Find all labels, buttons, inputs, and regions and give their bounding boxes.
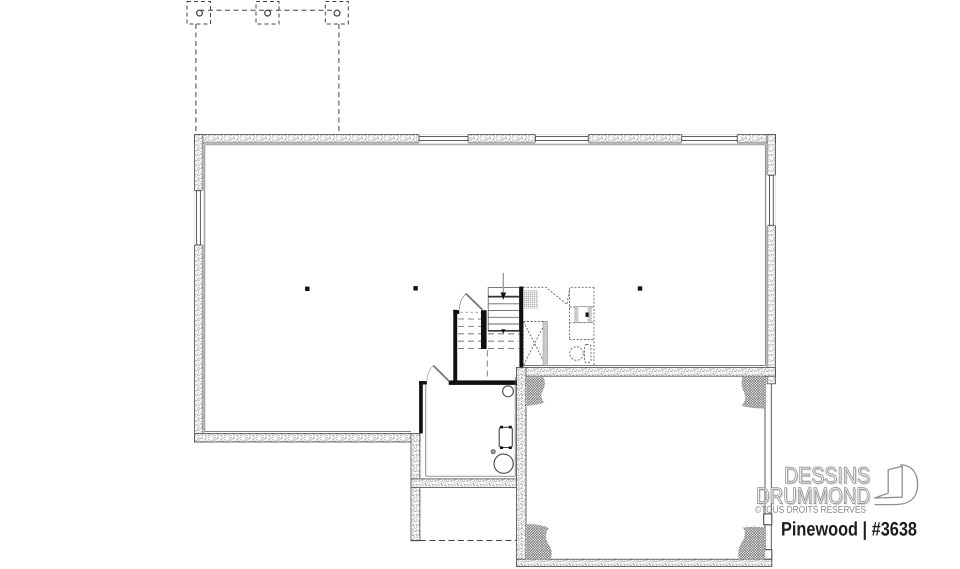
svg-text:Pinewood | #3638: Pinewood | #3638 [781, 518, 917, 540]
svg-text:©TOUS DROITS RÉSERVÉS: ©TOUS DROITS RÉSERVÉS [755, 505, 866, 516]
